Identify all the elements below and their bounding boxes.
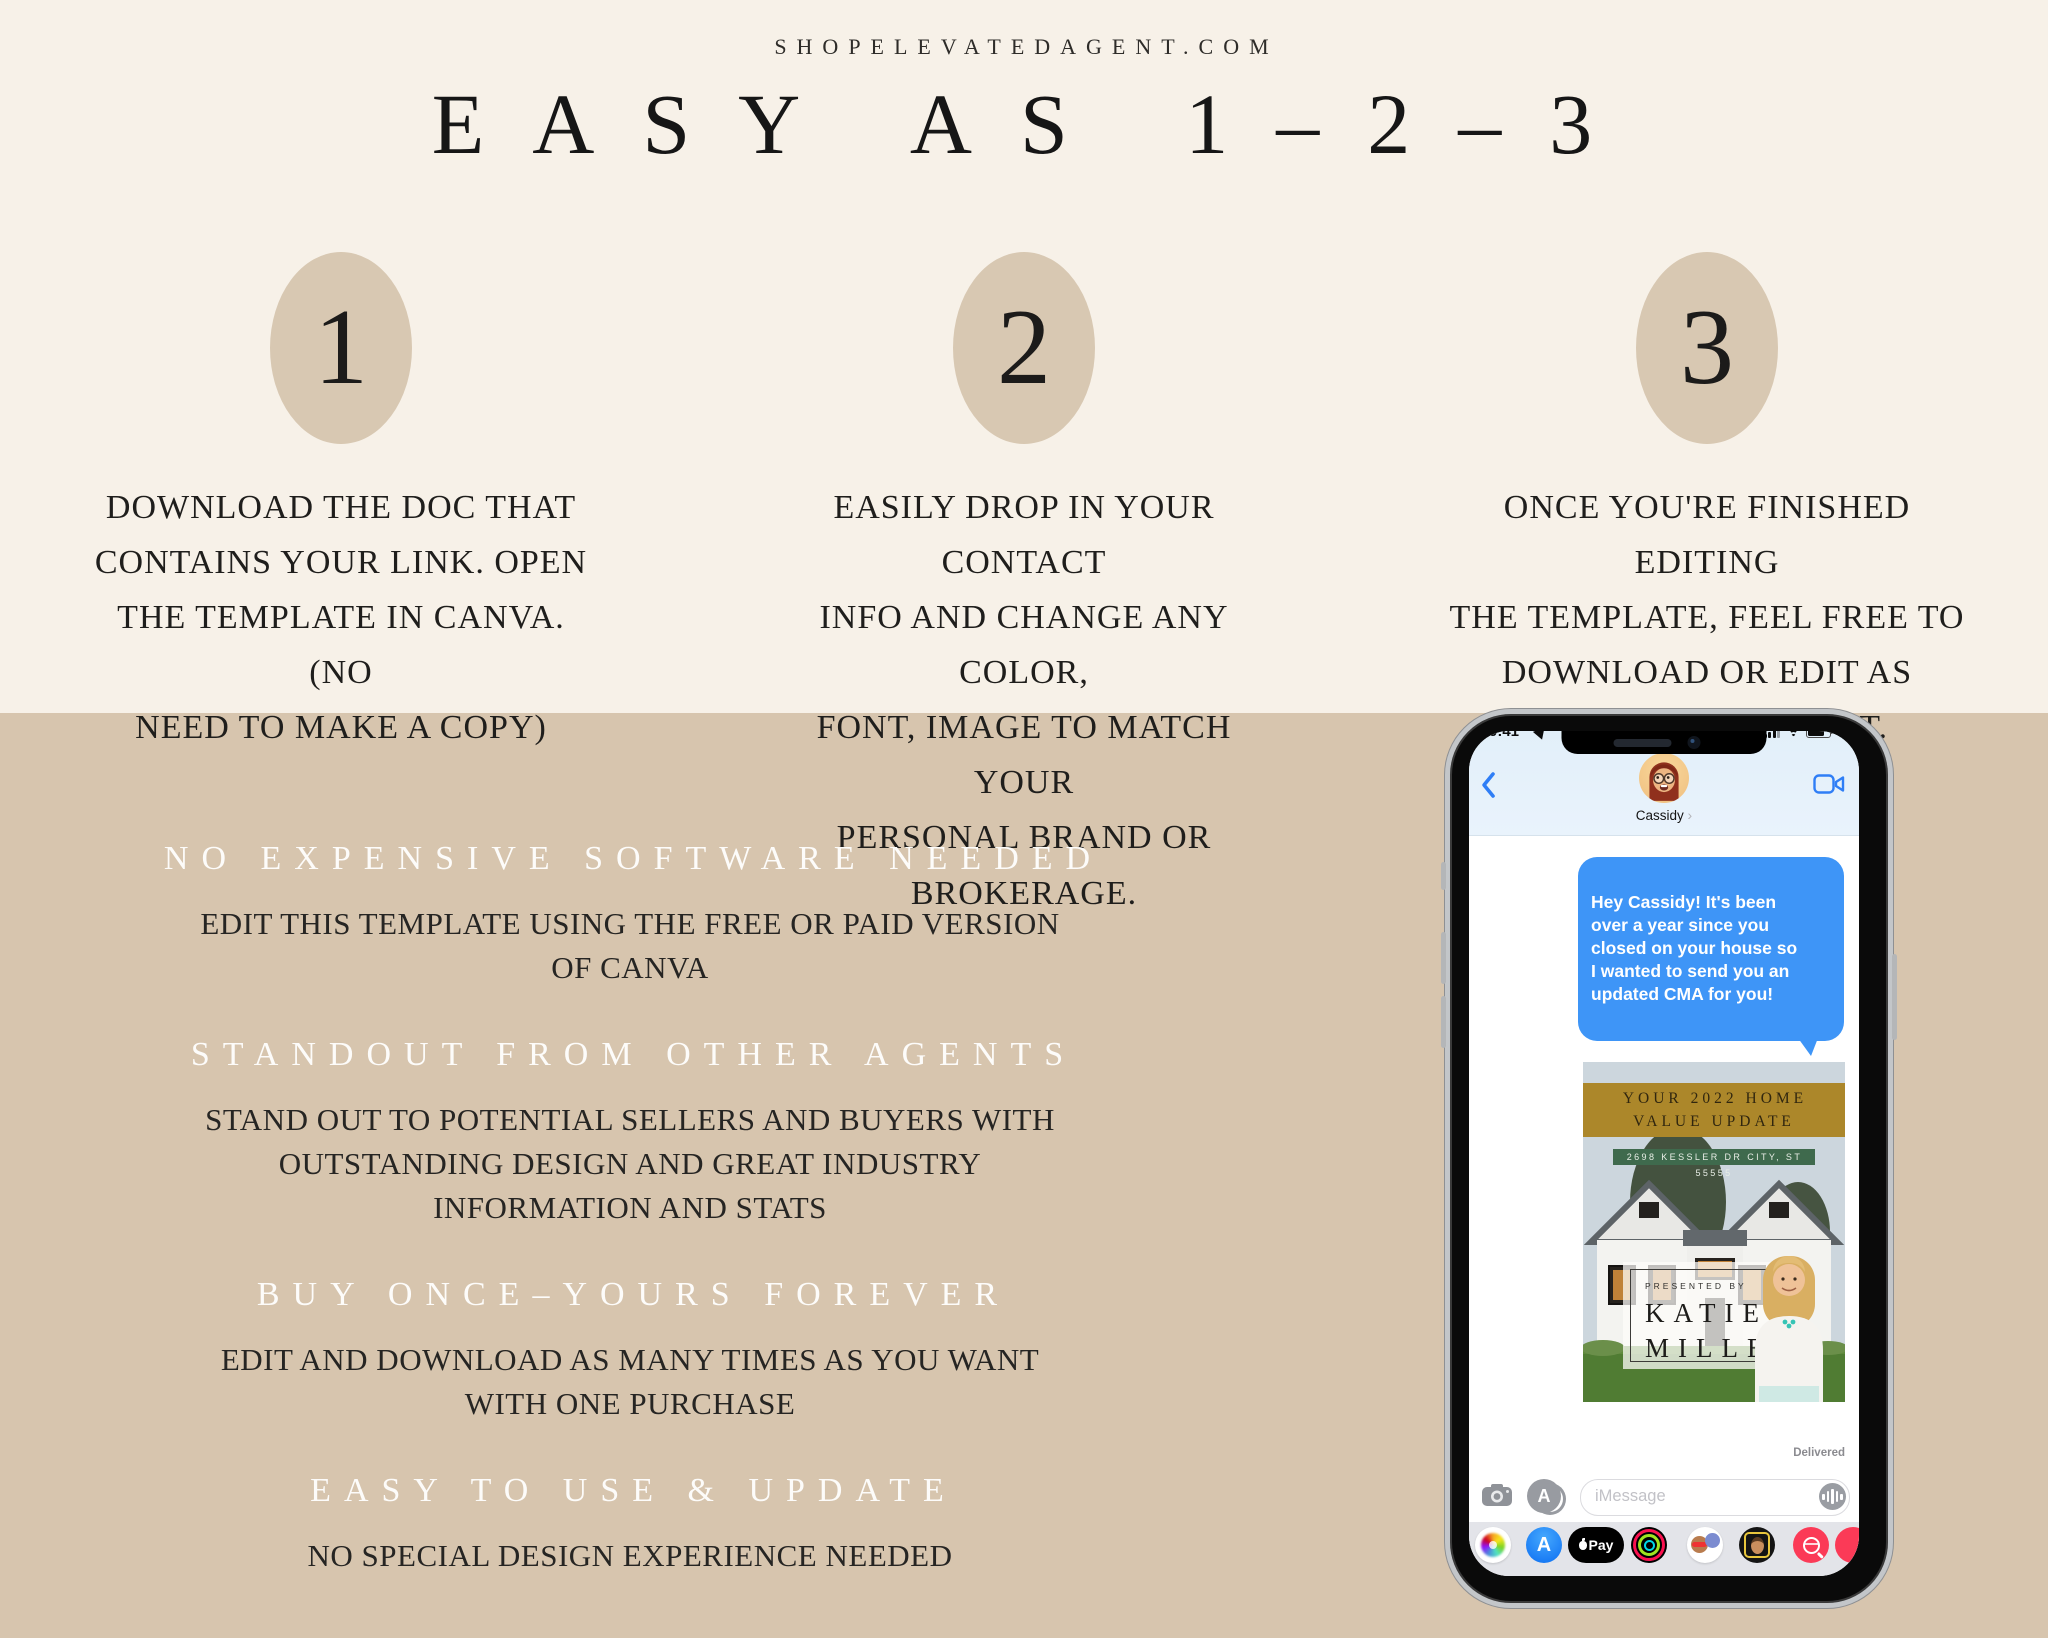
imessage-input[interactable]: iMessage [1580, 1479, 1850, 1516]
step-1: 1 DOWNLOAD THE DOC THAT CONTAINS YOUR LI… [81, 252, 601, 755]
wifi-icon [1785, 731, 1801, 738]
camera-icon[interactable] [1481, 1483, 1513, 1512]
benefit-3-heading: BUY ONCE–YOURS FOREVER [80, 1276, 1180, 1314]
back-chevron-icon[interactable] [1481, 771, 1496, 804]
mute-switch[interactable] [1441, 862, 1446, 890]
front-camera [1688, 736, 1701, 749]
agent-photo [1735, 1238, 1843, 1402]
contact-name-row[interactable]: Cassidy › [1469, 807, 1859, 823]
step-1-number: 1 [314, 294, 368, 402]
site-url: SHOPELEVATEDAGENT.COM [0, 34, 2048, 60]
status-time: 9:41 [1489, 731, 1519, 740]
search-images-icon[interactable] [1793, 1527, 1829, 1563]
iphone-mockup: 9:41 [1445, 709, 1893, 1608]
step-3: 3 ONCE YOU'RE FINISHED EDITING THE TEMPL… [1447, 252, 1967, 755]
contact-name: Cassidy [1636, 808, 1684, 823]
step-3-number: 3 [1680, 294, 1734, 402]
step-1-circle: 1 [270, 252, 412, 444]
facetime-video-icon[interactable] [1813, 773, 1845, 800]
app-store-letter: A [1537, 1534, 1551, 1557]
step-3-circle: 3 [1636, 252, 1778, 444]
benefit-1-body: EDIT THIS TEMPLATE USING THE FREE OR PAI… [80, 902, 1180, 990]
contact-chevron-icon: › [1688, 807, 1693, 823]
apps-letter: A [1538, 1486, 1551, 1507]
volume-down-button[interactable] [1441, 996, 1446, 1048]
apple-logo-icon [1579, 1541, 1587, 1550]
memoji-stickers-icon[interactable] [1687, 1527, 1723, 1563]
step-1-text: DOWNLOAD THE DOC THAT CONTAINS YOUR LINK… [81, 480, 601, 755]
delivered-status: Delivered [1793, 1447, 1845, 1459]
power-button[interactable] [1892, 954, 1897, 1040]
contact-avatar[interactable] [1639, 753, 1689, 803]
volume-up-button[interactable] [1441, 932, 1446, 984]
audio-message-icon[interactable] [1819, 1483, 1846, 1510]
apple-pay-icon[interactable]: Pay [1568, 1527, 1624, 1563]
page-title: EASY AS 1–2–3 [0, 74, 2048, 174]
fitness-app-icon[interactable] [1631, 1527, 1667, 1563]
imessage-placeholder: iMessage [1595, 1480, 1666, 1513]
benefit-1-heading: NO EXPENSIVE SOFTWARE NEEDED [80, 840, 1180, 878]
app-store-icon[interactable]: A [1526, 1527, 1562, 1563]
earpiece-speaker [1614, 739, 1672, 747]
message-text: Hey Cassidy! It's been over a year since… [1591, 892, 1797, 1004]
apple-pay-label: Pay [1589, 1537, 1614, 1553]
step-2: 2 EASILY DROP IN YOUR CONTACT INFO AND C… [764, 252, 1284, 921]
benefit-4-heading: EASY TO USE & UPDATE [80, 1472, 1180, 1510]
imessage-apps-icon[interactable]: A [1527, 1479, 1561, 1513]
sent-message-bubble[interactable]: Hey Cassidy! It's been over a year since… [1578, 857, 1844, 1041]
benefits-list: NO EXPENSIVE SOFTWARE NEEDED EDIT THIS T… [80, 840, 1180, 1578]
card-address-banner: 2698 KESSLER DR CITY, ST 55555 [1613, 1149, 1815, 1165]
benefit-4-body: NO SPECIAL DESIGN EXPERIENCE NEEDED [80, 1534, 1180, 1578]
phone-notch [1562, 731, 1767, 754]
phone-screen: 9:41 [1469, 731, 1859, 1576]
card-gold-banner: YOUR 2022 HOME VALUE UPDATE [1583, 1083, 1845, 1137]
step-2-number: 2 [997, 294, 1051, 402]
memoji-face [1639, 753, 1689, 803]
app-drawer: A Pay [1469, 1522, 1859, 1576]
marketing-graphic: SHOPELEVATEDAGENT.COM EASY AS 1–2–3 1 DO… [0, 0, 2048, 1638]
bubble-tail [1798, 1038, 1818, 1056]
benefit-2-heading: STANDOUT FROM OTHER AGENTS [80, 1036, 1180, 1074]
animoji-camera-icon[interactable] [1739, 1527, 1775, 1563]
home-value-card-attachment[interactable]: YOUR 2022 HOME VALUE UPDATE 2698 KESSLER… [1583, 1062, 1845, 1402]
more-apps-icon[interactable] [1835, 1527, 1859, 1563]
step-2-circle: 2 [953, 252, 1095, 444]
battery-icon [1806, 731, 1831, 738]
benefit-2-body: STAND OUT TO POTENTIAL SELLERS AND BUYER… [80, 1098, 1180, 1230]
photos-app-icon[interactable] [1475, 1527, 1511, 1563]
benefit-3-body: EDIT AND DOWNLOAD AS MANY TIMES AS YOU W… [80, 1338, 1180, 1426]
location-arrow-icon [1533, 731, 1549, 740]
